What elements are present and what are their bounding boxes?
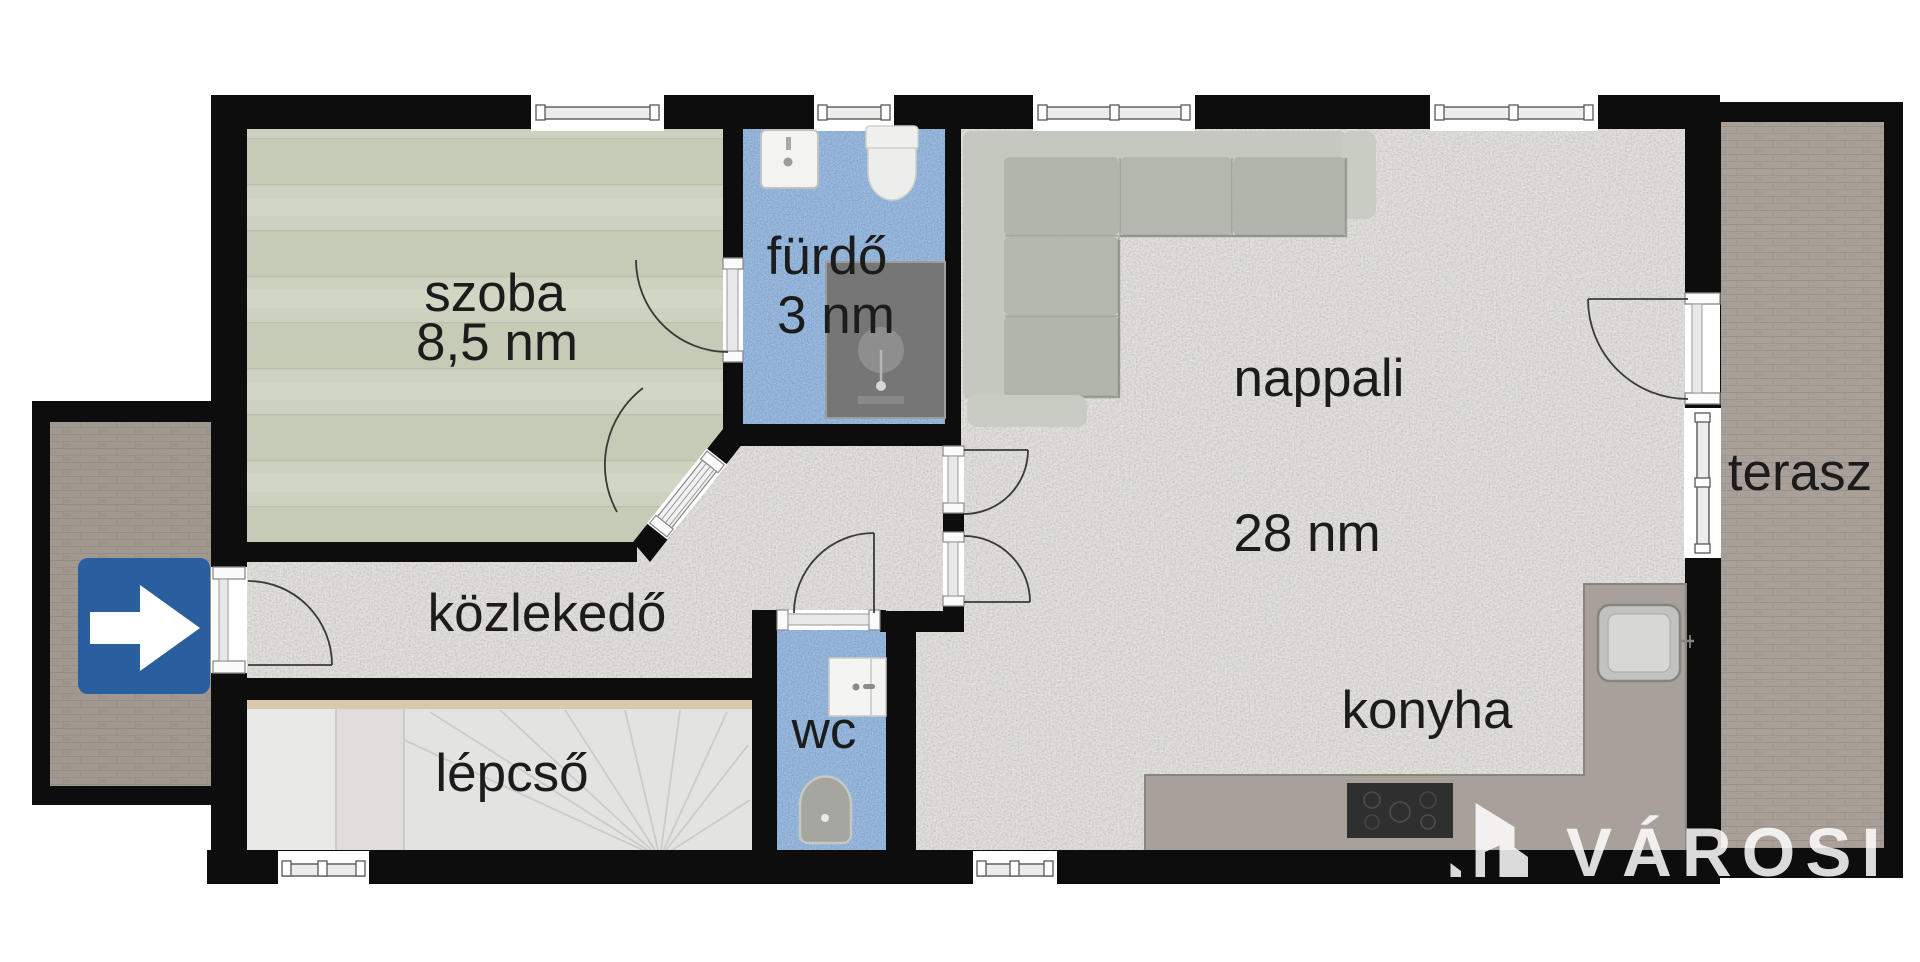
svg-text:3 nm: 3 nm — [777, 286, 895, 345]
svg-text:fürdő: fürdő — [767, 227, 888, 286]
svg-text:közlekedő: közlekedő — [428, 584, 667, 643]
svg-text:28 nm: 28 nm — [1233, 504, 1380, 563]
svg-text:wc: wc — [791, 701, 857, 760]
svg-text:terasz: terasz — [1728, 443, 1872, 502]
svg-text:lépcső: lépcső — [435, 744, 588, 803]
svg-text:nappali: nappali — [1234, 349, 1405, 408]
svg-text:8,5 nm: 8,5 nm — [416, 313, 578, 372]
svg-text:konyha: konyha — [1342, 681, 1513, 740]
svg-text:VÁROSI: VÁROSI — [1566, 814, 1891, 891]
